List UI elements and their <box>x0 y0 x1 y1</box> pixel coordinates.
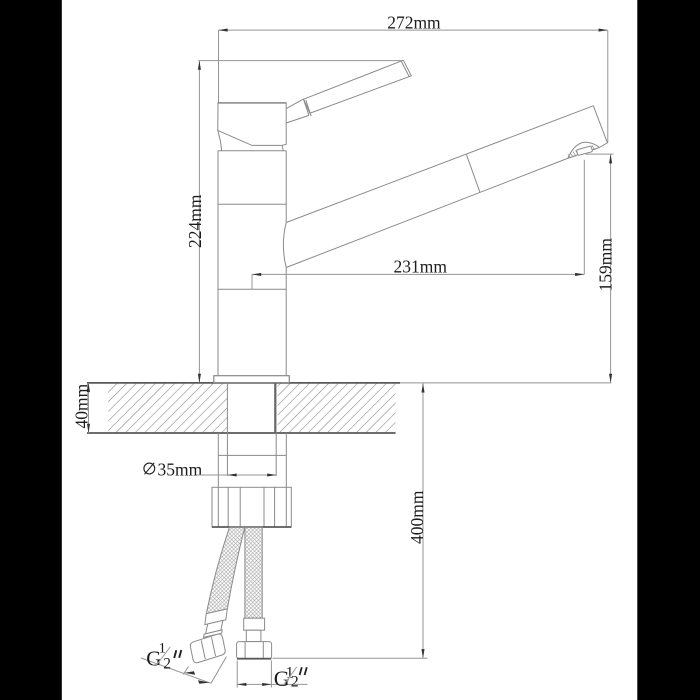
svg-text:35mm: 35mm <box>158 460 203 480</box>
svg-text:40mm: 40mm <box>72 383 92 428</box>
svg-text:272mm: 272mm <box>387 13 441 33</box>
svg-text:2: 2 <box>291 674 299 691</box>
svg-text:2: 2 <box>163 655 171 672</box>
svg-text:400mm: 400mm <box>407 490 427 544</box>
svg-text:231mm: 231mm <box>394 257 448 277</box>
svg-text:224mm: 224mm <box>185 194 205 248</box>
svg-text:159mm: 159mm <box>596 238 616 292</box>
